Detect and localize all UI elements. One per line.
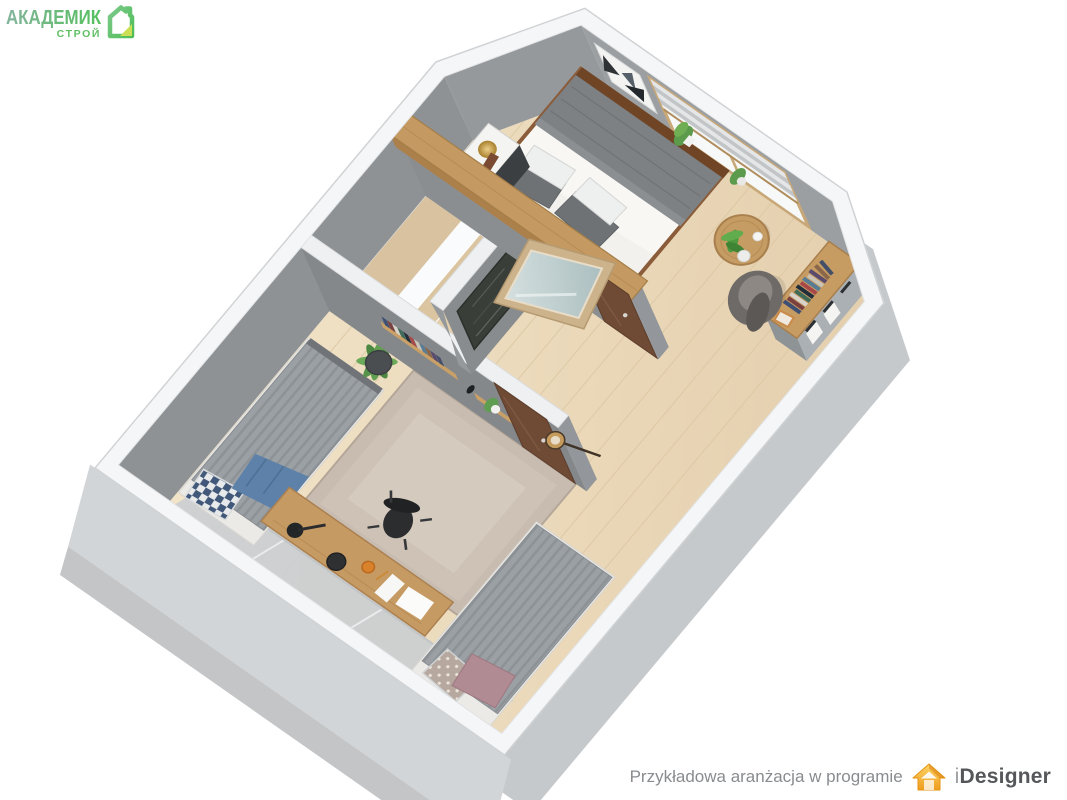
footer-caption-text: Przykładowa aranżacja w programie (630, 767, 903, 787)
page: АКАДЕМИК СТРОЙ Przykładowa aranżacja w p… (0, 0, 1067, 800)
house-logo-icon (110, 8, 132, 37)
brand-name-line2: СТРОЙ (57, 27, 101, 40)
brand-logo-svg: АКАДЕМИК СТРОЙ (4, 4, 164, 46)
app-name: iDesigner (955, 765, 1051, 789)
app-name-rest: Designer (960, 765, 1051, 788)
floor-plan-render (0, 0, 1067, 800)
idesigner-house-icon (912, 762, 946, 792)
brand-logo: АКАДЕМИК СТРОЙ (4, 4, 164, 51)
footer-caption: Przykładowa aranżacja w programie iDesig… (630, 762, 1051, 792)
brand-name-line1: АКАДЕМИК (6, 6, 101, 29)
